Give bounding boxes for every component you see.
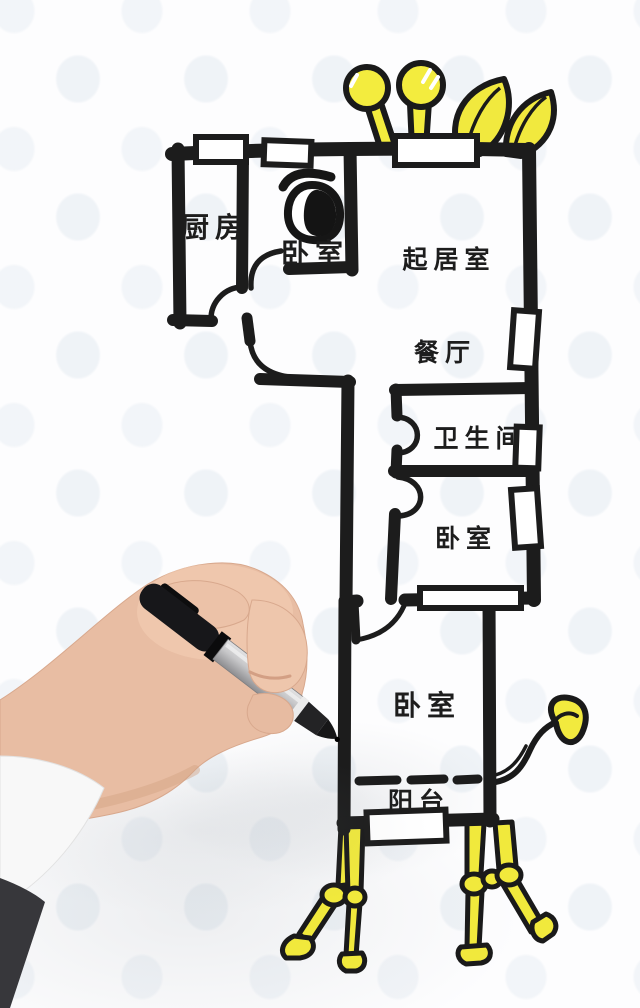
room-label-kitchen: 厨房 <box>175 206 249 246</box>
floorplan-giraffe-drawing <box>0 0 640 1008</box>
room-label-bedroom-bottom: 卧室 <box>387 684 461 724</box>
room-label-balcony: 阳台 <box>382 782 450 818</box>
drawing-page: 厨房 卧室 起居室 餐厅 卫生间 卧室 卧室 阳台 <box>0 0 640 1008</box>
room-label-bedroom-top: 卧室 <box>275 232 349 272</box>
giraffe-tail <box>489 698 586 783</box>
giraffe-eye <box>283 173 340 240</box>
room-label-living-room: 起居室 <box>396 240 495 276</box>
room-label-dining-room: 餐厅 <box>408 333 476 369</box>
room-label-bathroom: 卫生间 <box>427 419 526 455</box>
room-label-bedroom-middle: 卧室 <box>429 519 497 555</box>
